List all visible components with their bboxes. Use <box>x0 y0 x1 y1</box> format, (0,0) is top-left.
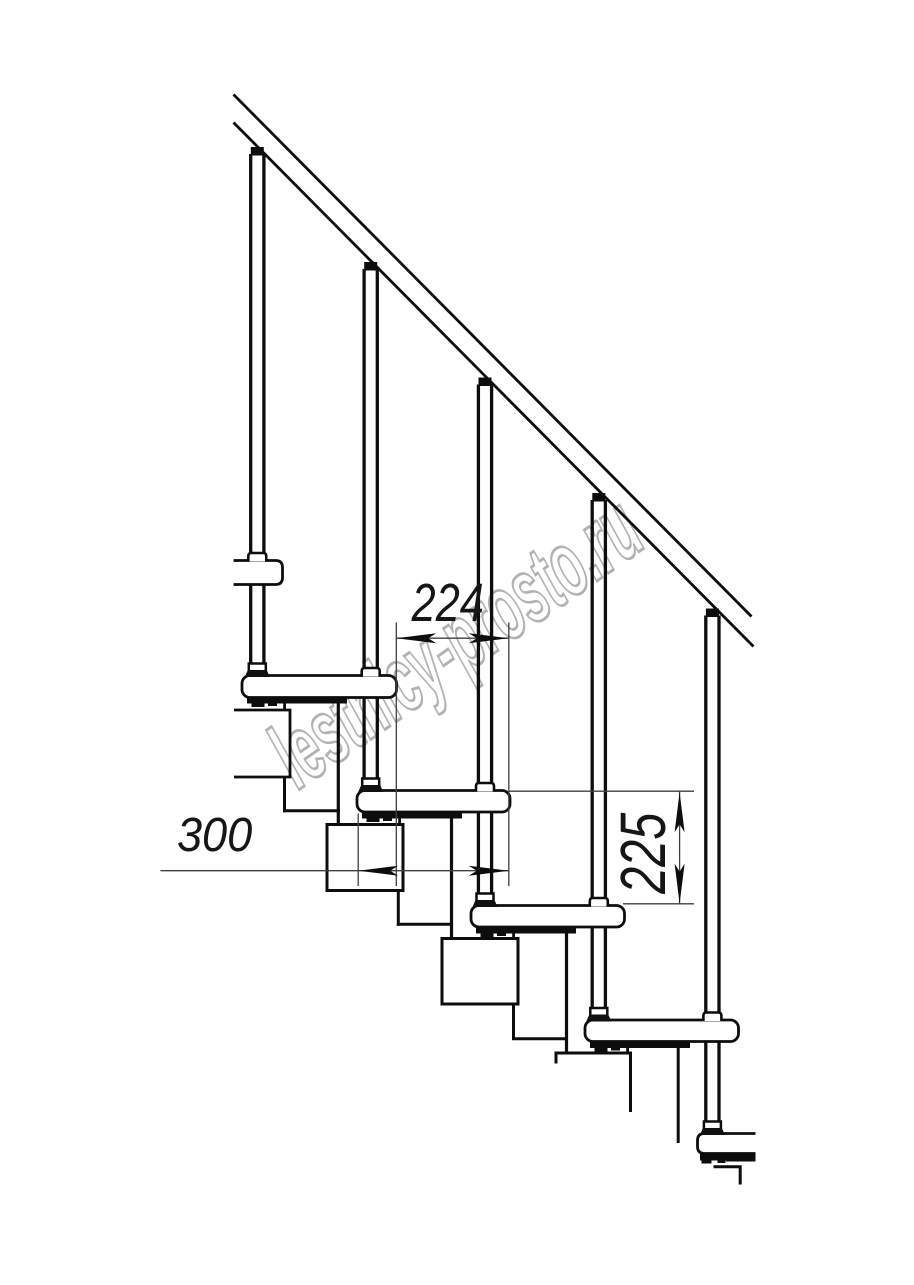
svg-text:300: 300 <box>177 808 252 862</box>
svg-text:225: 225 <box>609 812 680 894</box>
svg-text:224: 224 <box>411 574 484 634</box>
